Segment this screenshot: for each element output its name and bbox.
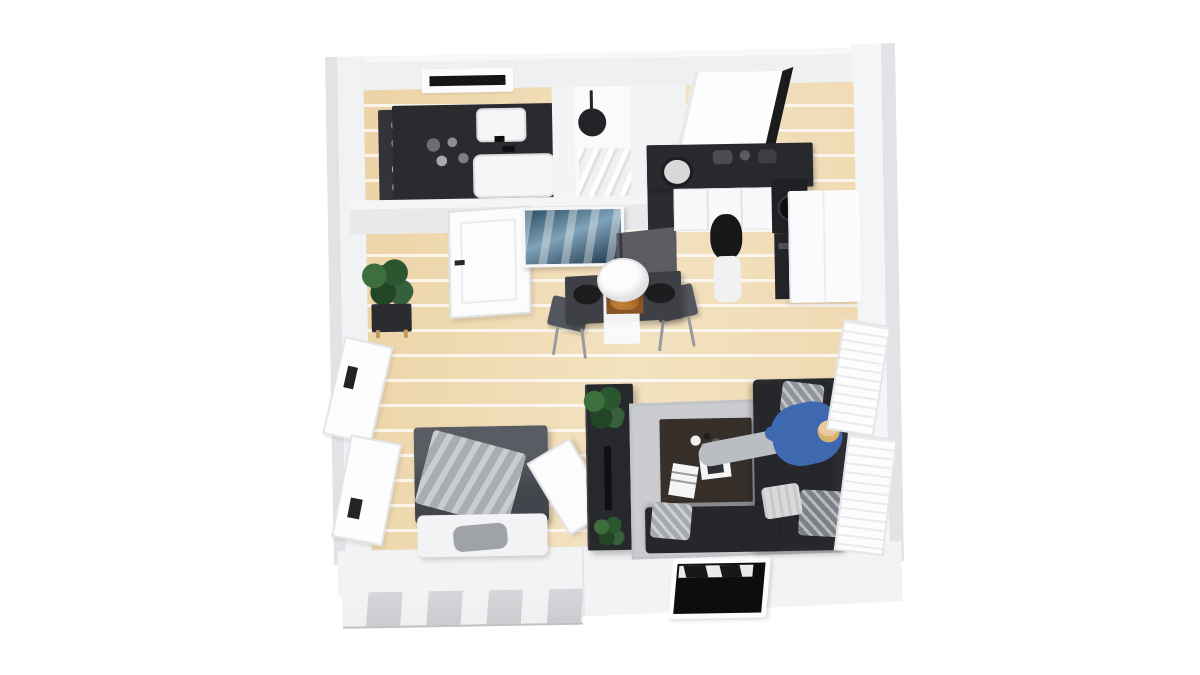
seascape-painting xyxy=(522,206,625,268)
bathroom-window xyxy=(421,68,513,94)
counter-items xyxy=(713,149,777,164)
facade-window-curtain xyxy=(683,565,708,577)
faucet xyxy=(494,136,504,142)
fridge-cabinet xyxy=(787,190,861,303)
facade-window xyxy=(668,557,771,619)
wall-panels xyxy=(834,319,886,552)
person-standing-torso xyxy=(710,214,743,261)
apartment-plan xyxy=(325,43,905,633)
front-facade-marble xyxy=(342,589,583,629)
shower-partition xyxy=(552,87,576,207)
window-opening xyxy=(343,366,358,390)
bathroom-window-glass xyxy=(429,75,505,86)
plant-stand-leg xyxy=(376,330,380,338)
bed xyxy=(412,425,552,557)
soundbar xyxy=(604,446,612,510)
sink-basin xyxy=(473,153,556,198)
shower-glass-texture xyxy=(579,148,638,203)
plant-stand-leg xyxy=(404,330,408,338)
magazine xyxy=(668,463,699,499)
door-handle xyxy=(455,260,465,266)
bed-pillow-gray xyxy=(452,522,508,553)
door-panel xyxy=(460,218,517,304)
faucet xyxy=(503,146,515,152)
facade-window-curtain xyxy=(719,565,742,577)
louvered-panel xyxy=(826,319,891,437)
floorplan-render xyxy=(0,0,1200,675)
window-opening xyxy=(347,498,363,520)
sofa-pillow-knit xyxy=(761,482,804,520)
person-standing-legs xyxy=(714,256,742,302)
sofa-pillow xyxy=(650,501,693,540)
person-standing xyxy=(710,212,748,339)
plant-stand xyxy=(371,304,411,333)
entry-door xyxy=(448,205,532,319)
person-lying xyxy=(697,400,848,487)
vanity-accessories xyxy=(422,130,477,177)
